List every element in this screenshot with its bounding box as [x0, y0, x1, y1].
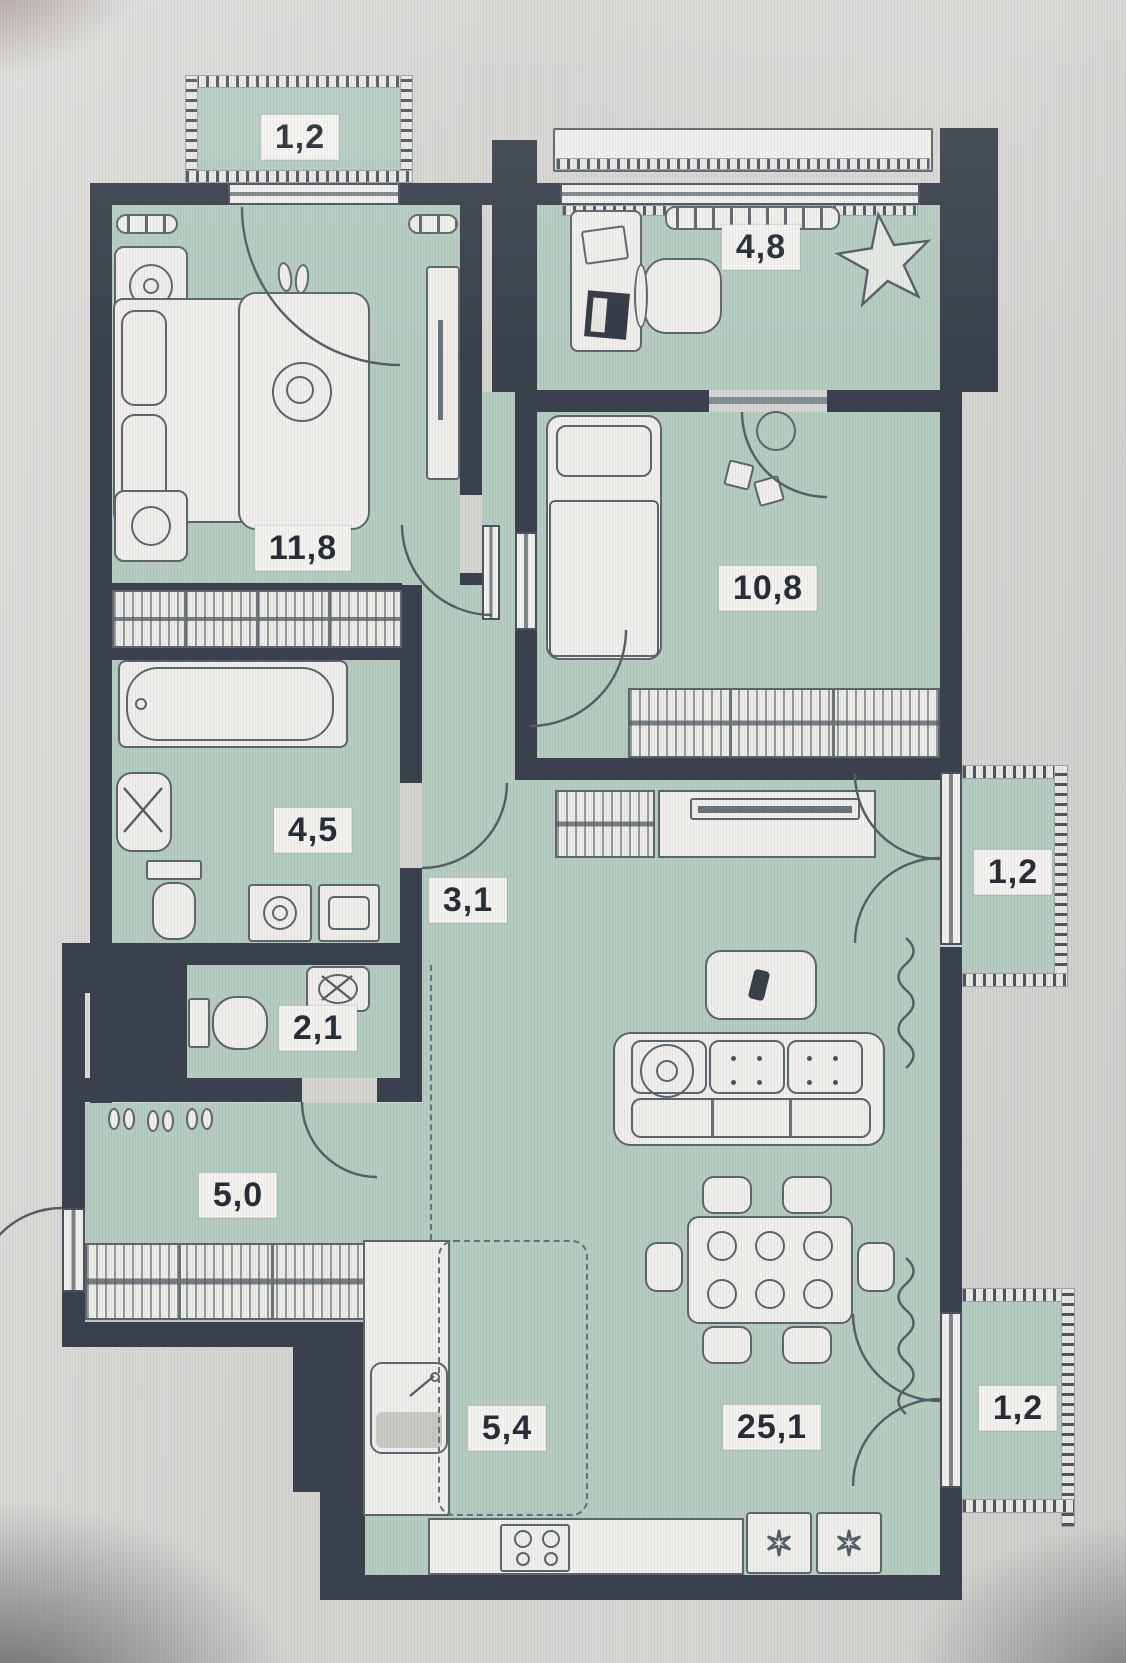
wall-kids-west-upper — [515, 392, 537, 532]
line — [832, 690, 835, 756]
wall-bedroom-east-stub — [460, 573, 482, 585]
sofa-cushion-3 — [787, 1040, 863, 1094]
line — [789, 1100, 792, 1136]
line — [184, 592, 187, 646]
bathtub-drain — [135, 698, 147, 710]
room-label-bedroom: 11,8 — [255, 526, 351, 571]
room-label-wc: 2,1 — [279, 1006, 357, 1051]
kitchen-zone-dashed — [438, 1240, 588, 1516]
wc-toilet-bowl — [212, 996, 268, 1050]
shoe-5 — [186, 1108, 198, 1130]
cat-on-sofa-inner — [656, 1060, 678, 1082]
wall-hall-top-right — [377, 1078, 422, 1102]
line — [328, 592, 331, 646]
shoe-3 — [147, 1110, 159, 1132]
sofa-cushion-2 — [709, 1040, 785, 1094]
balcony-tl-rail-left — [185, 75, 198, 183]
fridge — [746, 1512, 812, 1574]
single-bed-blanket — [549, 500, 659, 657]
room-label-hall: 5,0 — [199, 1173, 277, 1218]
floor-corridor — [422, 585, 515, 780]
wardrobe-kids — [628, 688, 940, 758]
pillow-1 — [121, 310, 167, 406]
window-bedroom-balcony — [228, 183, 400, 205]
dot — [757, 1056, 762, 1061]
wall-right-pier — [940, 128, 998, 392]
line — [729, 690, 732, 756]
balcony-tl-rail-bottom — [185, 170, 413, 183]
wall-bath-bottom — [90, 943, 422, 965]
dot — [731, 1080, 736, 1085]
burner-2 — [542, 1530, 560, 1548]
line — [271, 1245, 274, 1318]
wall-study-kids-right — [827, 390, 962, 412]
balcony-tl-rail-right — [400, 75, 413, 183]
balcony-br-rail-top — [962, 1288, 1075, 1302]
book-on-desk — [581, 225, 629, 265]
chair — [645, 1242, 683, 1292]
wc-sink-bowl — [318, 974, 358, 1004]
room-label-study: 4,8 — [722, 225, 800, 270]
chair — [702, 1326, 752, 1364]
wall-kids-bottom — [515, 758, 962, 780]
threshold-study-kids — [709, 397, 827, 404]
plate — [803, 1279, 833, 1309]
room-label-balcony-bottom-right: 1,2 — [979, 1386, 1057, 1431]
wc-toilet-tank — [188, 998, 210, 1048]
burner-3 — [516, 1552, 530, 1566]
door-leaf-kids — [515, 532, 537, 630]
closet-corridor — [555, 790, 655, 858]
laundry-basket-inner — [328, 896, 370, 930]
lamp-top-inner — [143, 278, 159, 294]
laptop-screen — [591, 297, 608, 332]
room-label-living: 25,1 — [723, 1405, 821, 1450]
shoe-1 — [108, 1108, 120, 1130]
wall-entry-corner — [62, 943, 112, 993]
wall-bath-top — [90, 648, 402, 660]
duvet-decor-inner — [286, 376, 314, 404]
dresser-handle — [438, 320, 443, 420]
plate — [803, 1231, 833, 1261]
chair — [782, 1176, 832, 1214]
bath-toilet-tank — [146, 860, 202, 880]
chair — [857, 1242, 895, 1292]
office-chair — [644, 258, 722, 334]
dot — [833, 1056, 838, 1061]
line — [178, 1245, 181, 1318]
wall-right-mid — [940, 947, 962, 1312]
dot — [757, 1080, 762, 1085]
wall-hall-top-left — [62, 1078, 302, 1102]
bathtub-inner — [126, 667, 334, 741]
shoe-6 — [201, 1108, 213, 1130]
dot — [833, 1080, 838, 1085]
dot — [807, 1056, 812, 1061]
door-arc-entrance — [0, 1208, 62, 1294]
wall-kids-west-lower — [515, 630, 537, 758]
wall-zigzag-1 — [293, 1347, 365, 1492]
wall-study-kids-left — [537, 390, 709, 412]
burner-4 — [544, 1552, 558, 1566]
wall-entry-upper — [62, 990, 85, 1208]
room-label-kids: 10,8 — [719, 566, 817, 611]
wall-bedroom-east — [460, 205, 482, 495]
wall-corridor-west-upper — [400, 585, 422, 783]
wall-closet-top — [112, 583, 402, 590]
entrance-door — [62, 1208, 85, 1292]
plate — [755, 1231, 785, 1261]
room-label-balcony-top-left: 1,2 — [261, 115, 339, 160]
dot — [807, 1080, 812, 1085]
dot — [731, 1056, 736, 1061]
balcony-door-mid-right — [940, 772, 962, 945]
door-leaf-bedroom — [482, 525, 500, 620]
washing-machine-door — [272, 905, 288, 921]
balcony-door-bottom-right — [940, 1312, 962, 1488]
single-bed-pillow — [556, 425, 652, 477]
balcony-tr-rail — [556, 158, 930, 170]
plate — [755, 1279, 785, 1309]
radiator-bedroom-right — [408, 214, 458, 234]
stove — [500, 1524, 570, 1572]
chair — [782, 1326, 832, 1364]
plate — [707, 1231, 737, 1261]
kitchen-sink-board — [376, 1412, 442, 1448]
wall-hall-bottom — [62, 1322, 365, 1347]
floor-plan-photo: 1,24,811,810,84,53,12,15,05,425,11,21,2 — [0, 0, 1126, 1663]
office-chair-back — [634, 264, 648, 328]
balcony-mr-rail-bottom — [962, 973, 1068, 987]
lamp-bottom — [131, 506, 171, 546]
line — [256, 592, 259, 646]
room-label-balcony-mid-right: 1,2 — [974, 850, 1052, 895]
freezer — [816, 1512, 882, 1574]
wall-bottom — [320, 1575, 962, 1600]
shoe-2 — [123, 1108, 135, 1130]
kitchen-counter-bottom — [428, 1518, 744, 1575]
balcony-mr-rail-right — [1054, 765, 1068, 987]
window-study — [560, 183, 920, 205]
sofa-seat — [631, 1098, 871, 1138]
room-label-kitchen: 5,4 — [468, 1406, 546, 1451]
balcony-br-rail-right — [1061, 1288, 1075, 1527]
bath-toilet-bowl — [152, 882, 196, 940]
radiator-bedroom-left — [116, 214, 178, 234]
balcony-br-rail-bottom — [962, 1499, 1075, 1513]
wall-top-band — [492, 140, 537, 392]
bath-sink — [116, 772, 172, 852]
dresser — [426, 266, 460, 480]
balcony-tl-rail-top — [185, 75, 413, 88]
burner-1 — [514, 1530, 532, 1548]
wall-corridor-west-lower — [400, 868, 422, 1078]
shoe-4 — [162, 1110, 174, 1132]
room-label-corridor: 3,1 — [429, 878, 507, 923]
balcony-mr-rail-top — [962, 765, 1068, 779]
line — [711, 1100, 714, 1136]
zone-dashed-line — [430, 965, 432, 1240]
wardrobe-hall — [85, 1243, 365, 1320]
chair — [702, 1176, 752, 1214]
tv-screen — [698, 806, 852, 813]
room-label-bathroom: 4,5 — [274, 808, 352, 853]
ball — [756, 411, 796, 451]
plate — [707, 1279, 737, 1309]
